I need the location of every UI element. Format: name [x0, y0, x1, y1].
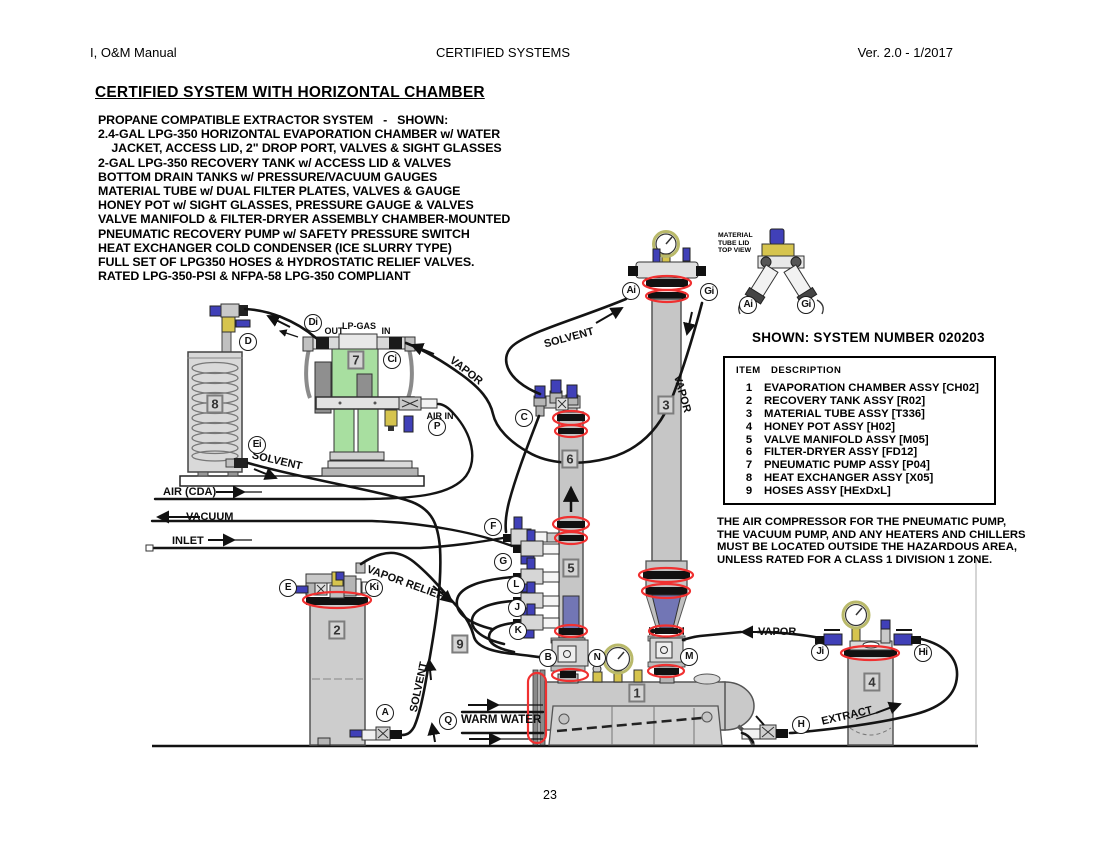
port-label-F: F — [484, 518, 502, 536]
port-label-Ai: Ai — [622, 282, 640, 300]
flow-label-air-cda: AIR (CDA) — [163, 486, 216, 498]
flow-label-in: IN — [382, 326, 391, 336]
port-label-D: D — [239, 333, 257, 351]
item-number-5: 5 — [562, 559, 579, 578]
inlet-line — [153, 538, 503, 548]
port-label-Gi-top-view: Gi — [797, 296, 815, 314]
pressure-gauge — [843, 602, 869, 641]
item-number-2: 2 — [328, 621, 345, 640]
port-label-J: J — [508, 599, 526, 617]
hose-solvent-to-chamber-lid — [506, 299, 626, 394]
flow-label-vapor-pot: VAPOR — [758, 626, 796, 638]
vacuum-line — [152, 521, 512, 546]
port-label-L: L — [507, 576, 525, 594]
port-label-Ei: Ei — [248, 436, 266, 454]
flow-label-vacuum: VACUUM — [186, 511, 233, 523]
port-label-Q: Q — [439, 712, 457, 730]
flow-label-warm-water: WARM WATER — [461, 714, 541, 726]
flow-label-out: OUT — [325, 326, 344, 336]
item-number-7: 7 — [347, 351, 364, 370]
port-label-A: A — [376, 704, 394, 722]
flow-label-lp-gas: LP-GAS — [342, 321, 376, 331]
port-label-Ji: Ji — [811, 643, 829, 661]
port-label-Gi: Gi — [700, 283, 718, 301]
item-number-8: 8 — [206, 395, 223, 414]
port-label-P: P — [428, 418, 446, 436]
flow-label-inlet: INLET — [172, 535, 204, 547]
item-number-6: 6 — [561, 450, 578, 469]
port-label-E: E — [279, 579, 297, 597]
port-label-G: G — [494, 553, 512, 571]
port-label-K: K — [509, 622, 527, 640]
port-label-H: H — [792, 716, 810, 734]
item-number-4: 4 — [863, 673, 880, 692]
pneumatic-pump — [303, 334, 437, 476]
heat-exchanger — [188, 304, 250, 476]
manual-page: { "page": { "header_left": "I, O&M Manua… — [0, 0, 1100, 850]
hose-filter-to-manifold — [506, 416, 539, 532]
hose-vapor-pot — [683, 632, 741, 640]
item-number-9: 9 — [451, 635, 468, 654]
item-number-1: 1 — [628, 684, 645, 703]
port-label-Hi: Hi — [914, 644, 932, 662]
pressure-gauge — [604, 645, 632, 682]
port-label-Ci: Ci — [383, 351, 401, 369]
port-label-M: M — [680, 648, 698, 666]
port-label-Ai-top-view: Ai — [739, 296, 757, 314]
system-diagram — [0, 0, 1100, 850]
hose-manifold-loop — [472, 601, 513, 644]
material-tube — [628, 232, 706, 676]
port-label-B: B — [539, 649, 557, 667]
port-label-N: N — [588, 649, 606, 667]
port-label-C: C — [515, 409, 533, 427]
inlet-end-fitting — [146, 545, 153, 551]
port-label-Di: Di — [304, 314, 322, 332]
port-label-Ki: Ki — [365, 579, 383, 597]
item-number-3: 3 — [657, 396, 674, 415]
